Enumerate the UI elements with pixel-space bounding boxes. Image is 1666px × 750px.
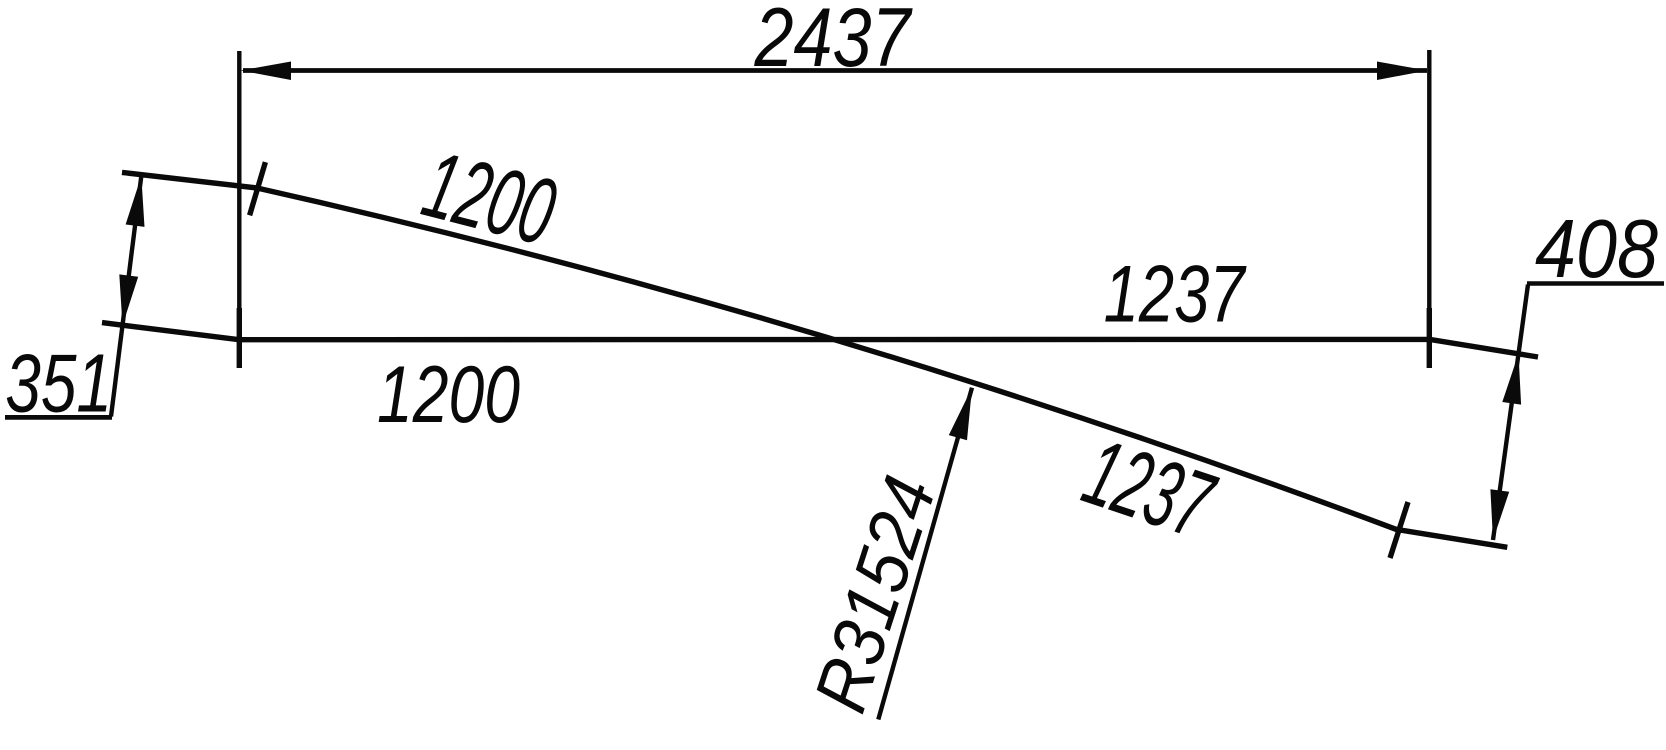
svg-text:1237: 1237 (1104, 250, 1247, 340)
svg-text:1200: 1200 (377, 350, 520, 440)
svg-text:351: 351 (5, 337, 112, 430)
svg-text:408: 408 (1535, 203, 1658, 295)
svg-text:2437: 2437 (754, 0, 914, 84)
